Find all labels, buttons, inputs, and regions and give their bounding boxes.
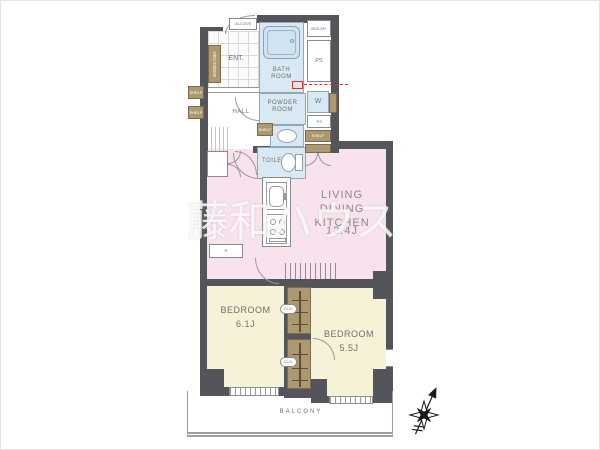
living-size-label: 12.4J (297, 225, 387, 239)
bathtub-drain (290, 39, 294, 43)
window-side (386, 349, 393, 367)
closet-hanger (292, 380, 308, 381)
washer-box: W (307, 91, 329, 113)
storage-closet (305, 144, 331, 153)
closet-label-pill: CLO. (280, 304, 297, 314)
wall (200, 153, 207, 279)
pipe-space-box: PS (307, 115, 331, 128)
alcove-label: ALCOVE (235, 22, 251, 27)
annotation-marker (292, 81, 303, 89)
ldk-side-closet (207, 151, 228, 177)
kitchen-sink (269, 186, 284, 207)
closet-hanger (292, 368, 308, 369)
powder-room-label: POWDER ROOM (261, 95, 304, 119)
kitchen-counter (262, 177, 291, 247)
compass-icon (403, 385, 445, 437)
shoes-cabinet-label: SHOES CBD (212, 51, 217, 77)
stove-burner (279, 229, 285, 235)
bedroom2-label: BEDROOM (313, 328, 385, 341)
living-label: LIVING DINING KITCHEN (297, 195, 387, 225)
kitchen-faucet (284, 193, 287, 200)
bathtub (263, 26, 300, 59)
shelf-box: SHELF (188, 106, 204, 119)
refrigerator-space: R (209, 244, 243, 258)
hall-label: HALL (223, 107, 259, 119)
closet-hanger (292, 354, 308, 355)
bedroom1-label: BEDROOM (207, 304, 284, 317)
toilet-bowl (281, 153, 296, 172)
washbasin-counter (270, 125, 304, 147)
alcove-label-box: ALCOVE (229, 18, 257, 30)
stove-burner (270, 219, 276, 225)
bedroom2-size-label: 5.5J (313, 342, 385, 355)
toilet-tank (295, 154, 303, 171)
closet-hanger (292, 324, 308, 325)
closet-hanger (292, 300, 308, 301)
stove-burner (270, 229, 276, 235)
closet-label-pill: CLO. (280, 357, 297, 367)
entrance-step (208, 87, 259, 93)
sliding-door-hatch (285, 263, 339, 279)
wall (284, 279, 311, 287)
cabinet-strip (329, 93, 337, 113)
pipe-space-box: PS (307, 40, 331, 82)
boiler-box: BOILER (307, 20, 331, 37)
entrance-label: ENT. (221, 53, 251, 65)
washbasin-sink (277, 129, 297, 143)
wall-pillar (373, 271, 387, 299)
kitchen-sink-section (266, 182, 287, 210)
balcony-label: BALCONY (253, 407, 349, 419)
hall-floor-hatch (211, 127, 229, 152)
floor-plan: ALCOVE ENT. SHOES CBD SHELF SHELF BATH R… (0, 0, 600, 450)
shelf-box: SHELF (305, 130, 331, 142)
wall (339, 141, 393, 149)
stove-panel (269, 238, 286, 242)
shoes-cabinet: SHOES CBD (208, 45, 221, 83)
kitchen-stove-section (266, 214, 287, 244)
shelf-box: SHELF (188, 86, 204, 99)
annotation-dashed-line (304, 84, 348, 85)
bedroom1-size-label: 6.1J (207, 318, 284, 331)
shelf-box: SHELF (257, 123, 273, 136)
stove-burner (279, 219, 285, 225)
